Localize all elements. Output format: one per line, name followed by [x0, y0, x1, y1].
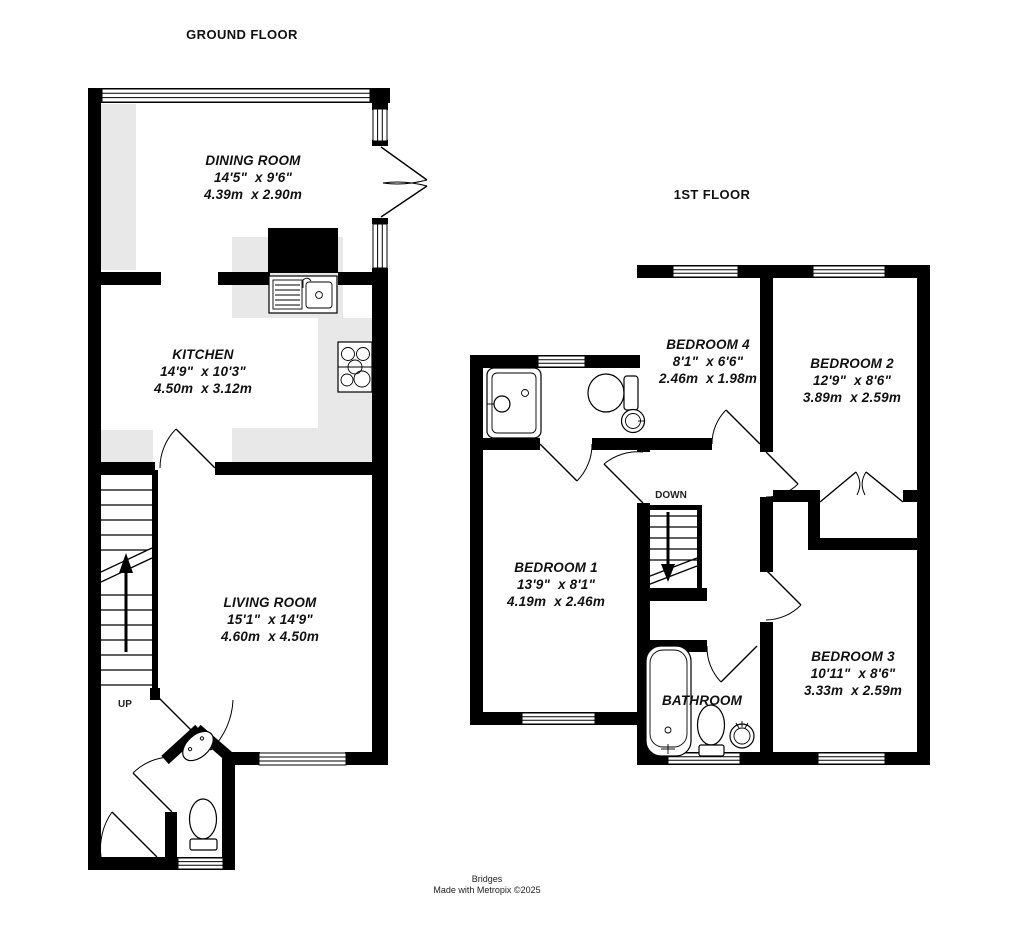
- bedroom3-label: BEDROOM 3 10'11" x 8'6" 3.33m x 2.59m: [804, 648, 902, 699]
- room-size-metric: 2.46m x 1.98m: [659, 370, 757, 387]
- room-name: BATHROOM: [662, 692, 742, 709]
- hob-icon: [338, 342, 372, 392]
- basin-icon: [622, 410, 646, 433]
- room-name: BEDROOM 2: [803, 355, 901, 372]
- chimney-breast: [268, 228, 338, 273]
- room-name: KITCHEN: [154, 346, 252, 363]
- bathroom-label: BATHROOM: [662, 692, 742, 709]
- room-name: BEDROOM 1: [507, 559, 605, 576]
- room-size-imperial: 14'9" x 10'3": [154, 363, 252, 380]
- room-name: LIVING ROOM: [221, 594, 319, 611]
- living-room-label: LIVING ROOM 15'1" x 14'9" 4.60m x 4.50m: [221, 594, 319, 645]
- first-floor-title: 1ST FLOOR: [674, 187, 751, 202]
- room-size-imperial: 13'9" x 8'1": [507, 576, 605, 593]
- room-size-imperial: 12'9" x 8'6": [803, 372, 901, 389]
- room-name: BEDROOM 3: [804, 648, 902, 665]
- stairs-up: [101, 490, 152, 685]
- up-arrow: [119, 553, 133, 652]
- footer-line1: Bridges: [433, 874, 540, 885]
- bedroom1-label: BEDROOM 1 13'9" x 8'1" 4.19m x 2.46m: [507, 559, 605, 610]
- door-arc: [100, 429, 233, 857]
- toilet-icon: [190, 799, 218, 850]
- ground-floor-plan: [88, 88, 427, 870]
- basin-icon: [730, 721, 754, 748]
- toilet-icon: [588, 374, 638, 412]
- toilet-icon: [698, 705, 725, 756]
- dining-room-label: DINING ROOM 14'5" x 9'6" 4.39m x 2.90m: [204, 152, 302, 203]
- stairs-down-label: DOWN: [655, 490, 687, 501]
- stairs-down: [645, 512, 697, 586]
- room-size-metric: 3.33m x 2.59m: [804, 682, 902, 699]
- room-size-imperial: 14'5" x 9'6": [204, 169, 302, 186]
- french-doors: [381, 147, 427, 217]
- stairs-up-label: UP: [118, 699, 132, 710]
- room-name: BEDROOM 4: [659, 336, 757, 353]
- room-size-metric: 3.89m x 2.59m: [803, 389, 901, 406]
- room-size-imperial: 10'11" x 8'6": [804, 665, 902, 682]
- room-size-metric: 4.19m x 2.46m: [507, 593, 605, 610]
- room-size-imperial: 8'1" x 6'6": [659, 353, 757, 370]
- footer-line2: Made with Metropix ©2025: [433, 885, 540, 896]
- room-size-metric: 4.39m x 2.90m: [204, 186, 302, 203]
- room-size-metric: 4.50m x 3.12m: [154, 380, 252, 397]
- footer-credit: Bridges Made with Metropix ©2025: [433, 874, 540, 896]
- room-size-imperial: 15'1" x 14'9": [221, 611, 319, 628]
- bedroom2-label: BEDROOM 2 12'9" x 8'6" 3.89m x 2.59m: [803, 355, 901, 406]
- floorplan-page: GROUND FLOOR 1ST FLOOR DINING ROOM 14'5"…: [0, 0, 1024, 947]
- sink-unit-icon: [269, 276, 337, 313]
- bedroom4-label: BEDROOM 4 8'1" x 6'6" 2.46m x 1.98m: [659, 336, 757, 387]
- shower-icon: [487, 368, 541, 438]
- kitchen-label: KITCHEN 14'9" x 10'3" 4.50m x 3.12m: [154, 346, 252, 397]
- wardrobe-doors: [820, 472, 903, 502]
- room-name: DINING ROOM: [204, 152, 302, 169]
- room-size-metric: 4.60m x 4.50m: [221, 628, 319, 645]
- ground-floor-title: GROUND FLOOR: [186, 27, 298, 42]
- floorplan-drawing: [0, 0, 1024, 947]
